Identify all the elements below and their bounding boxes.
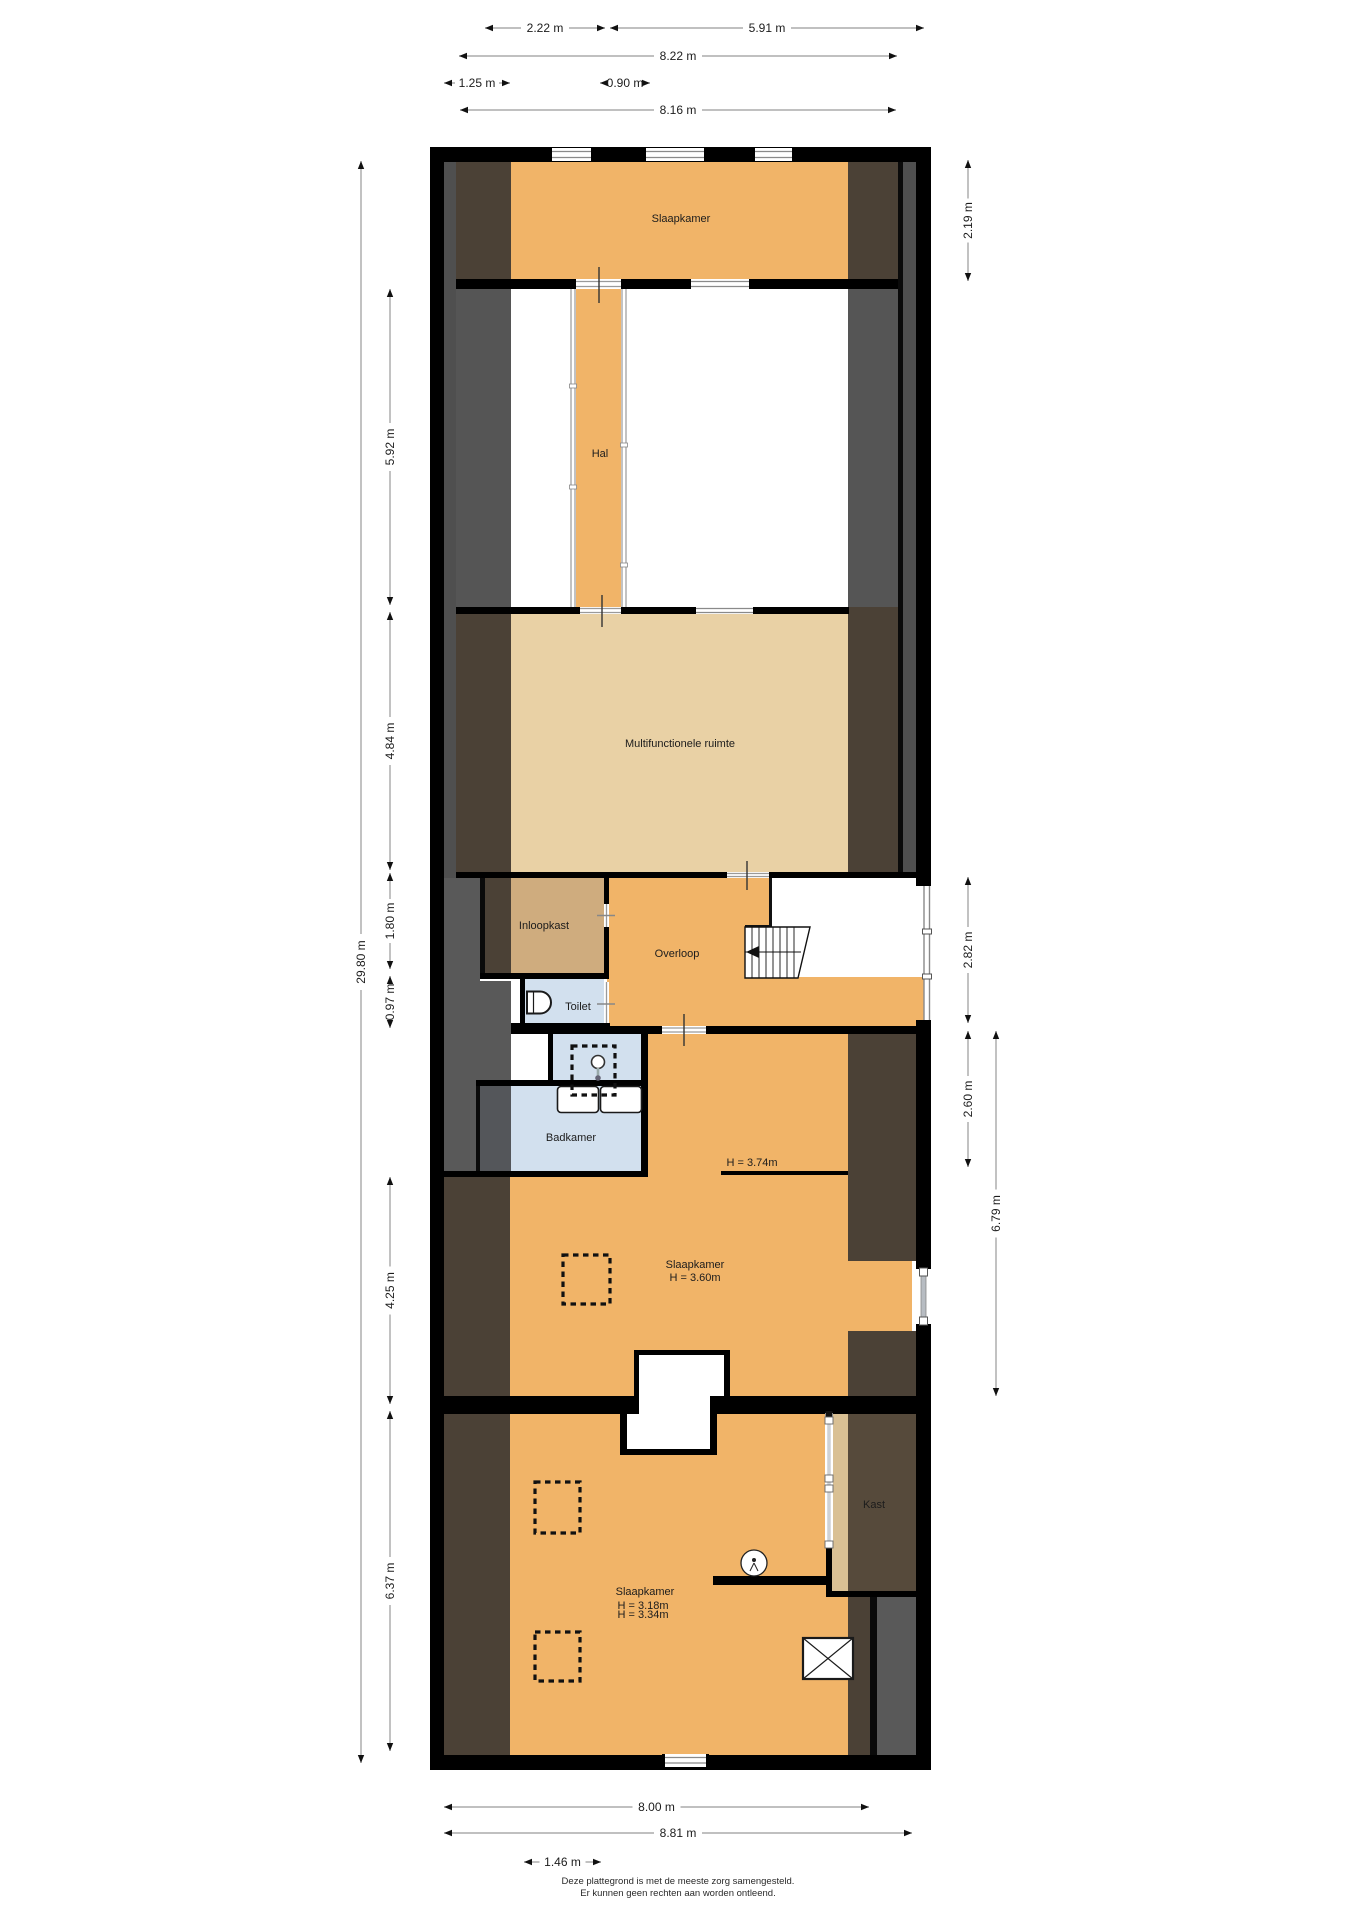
svg-text:1.80 m: 1.80 m (383, 903, 397, 940)
svg-text:2.82 m: 2.82 m (961, 932, 975, 969)
svg-text:H = 3.34m: H = 3.34m (617, 1609, 668, 1621)
svg-text:1.25 m: 1.25 m (459, 76, 496, 90)
svg-text:4.84 m: 4.84 m (383, 723, 397, 760)
svg-text:8.81 m: 8.81 m (660, 1826, 697, 1840)
svg-text:1.46 m: 1.46 m (544, 1855, 581, 1869)
svg-text:Kast: Kast (863, 1499, 885, 1511)
svg-text:2.19 m: 2.19 m (961, 202, 975, 239)
svg-text:8.22 m: 8.22 m (660, 49, 697, 63)
svg-text:Er kunnen geen rechten aan wor: Er kunnen geen rechten aan worden ontlee… (580, 1888, 775, 1899)
svg-text:0.97 m: 0.97 m (383, 984, 397, 1021)
svg-text:29.80 m: 29.80 m (354, 940, 368, 983)
svg-text:H = 3.60m: H = 3.60m (669, 1272, 720, 1284)
svg-text:5.91 m: 5.91 m (749, 21, 786, 35)
svg-text:H = 3.74m: H = 3.74m (726, 1157, 777, 1169)
svg-text:6.37 m: 6.37 m (383, 1563, 397, 1600)
svg-text:Overloop: Overloop (655, 948, 700, 960)
svg-text:Toilet: Toilet (565, 1001, 591, 1013)
svg-text:4.25 m: 4.25 m (383, 1272, 397, 1309)
svg-text:Hal: Hal (592, 448, 609, 460)
svg-text:Multifunctionele ruimte: Multifunctionele ruimte (625, 738, 735, 750)
svg-text:5.92 m: 5.92 m (383, 429, 397, 466)
svg-text:8.00 m: 8.00 m (638, 1800, 675, 1814)
svg-text:0.90 m: 0.90 m (607, 76, 644, 90)
svg-text:Slaapkamer: Slaapkamer (652, 213, 711, 225)
svg-text:2.22 m: 2.22 m (527, 21, 564, 35)
svg-text:6.79 m: 6.79 m (989, 1195, 1003, 1232)
svg-text:8.16 m: 8.16 m (660, 103, 697, 117)
svg-text:Inloopkast: Inloopkast (519, 920, 569, 932)
svg-text:Badkamer: Badkamer (546, 1132, 596, 1144)
svg-text:Slaapkamer: Slaapkamer (616, 1586, 675, 1598)
svg-text:2.60 m: 2.60 m (961, 1081, 975, 1118)
svg-text:Slaapkamer: Slaapkamer (666, 1259, 725, 1271)
svg-text:Deze plattegrond is met de mee: Deze plattegrond is met de meeste zorg s… (562, 1876, 795, 1887)
